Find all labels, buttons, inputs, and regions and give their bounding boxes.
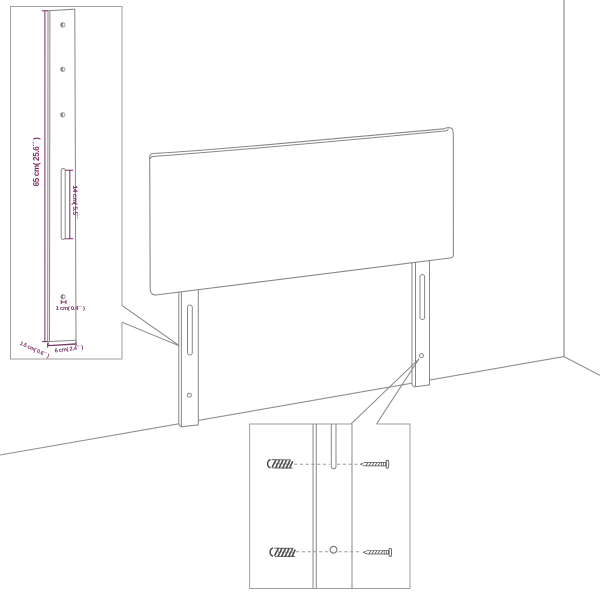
svg-text:14 cm( 5.5´´: 14 cm( 5.5´´ — [71, 185, 78, 218]
svg-text:1 cm( 0.4´´ ): 1 cm( 0.4´´ ) — [56, 306, 85, 312]
svg-text:65 cm( 25.6´´ ): 65 cm( 25.6´´ ) — [32, 137, 41, 186]
